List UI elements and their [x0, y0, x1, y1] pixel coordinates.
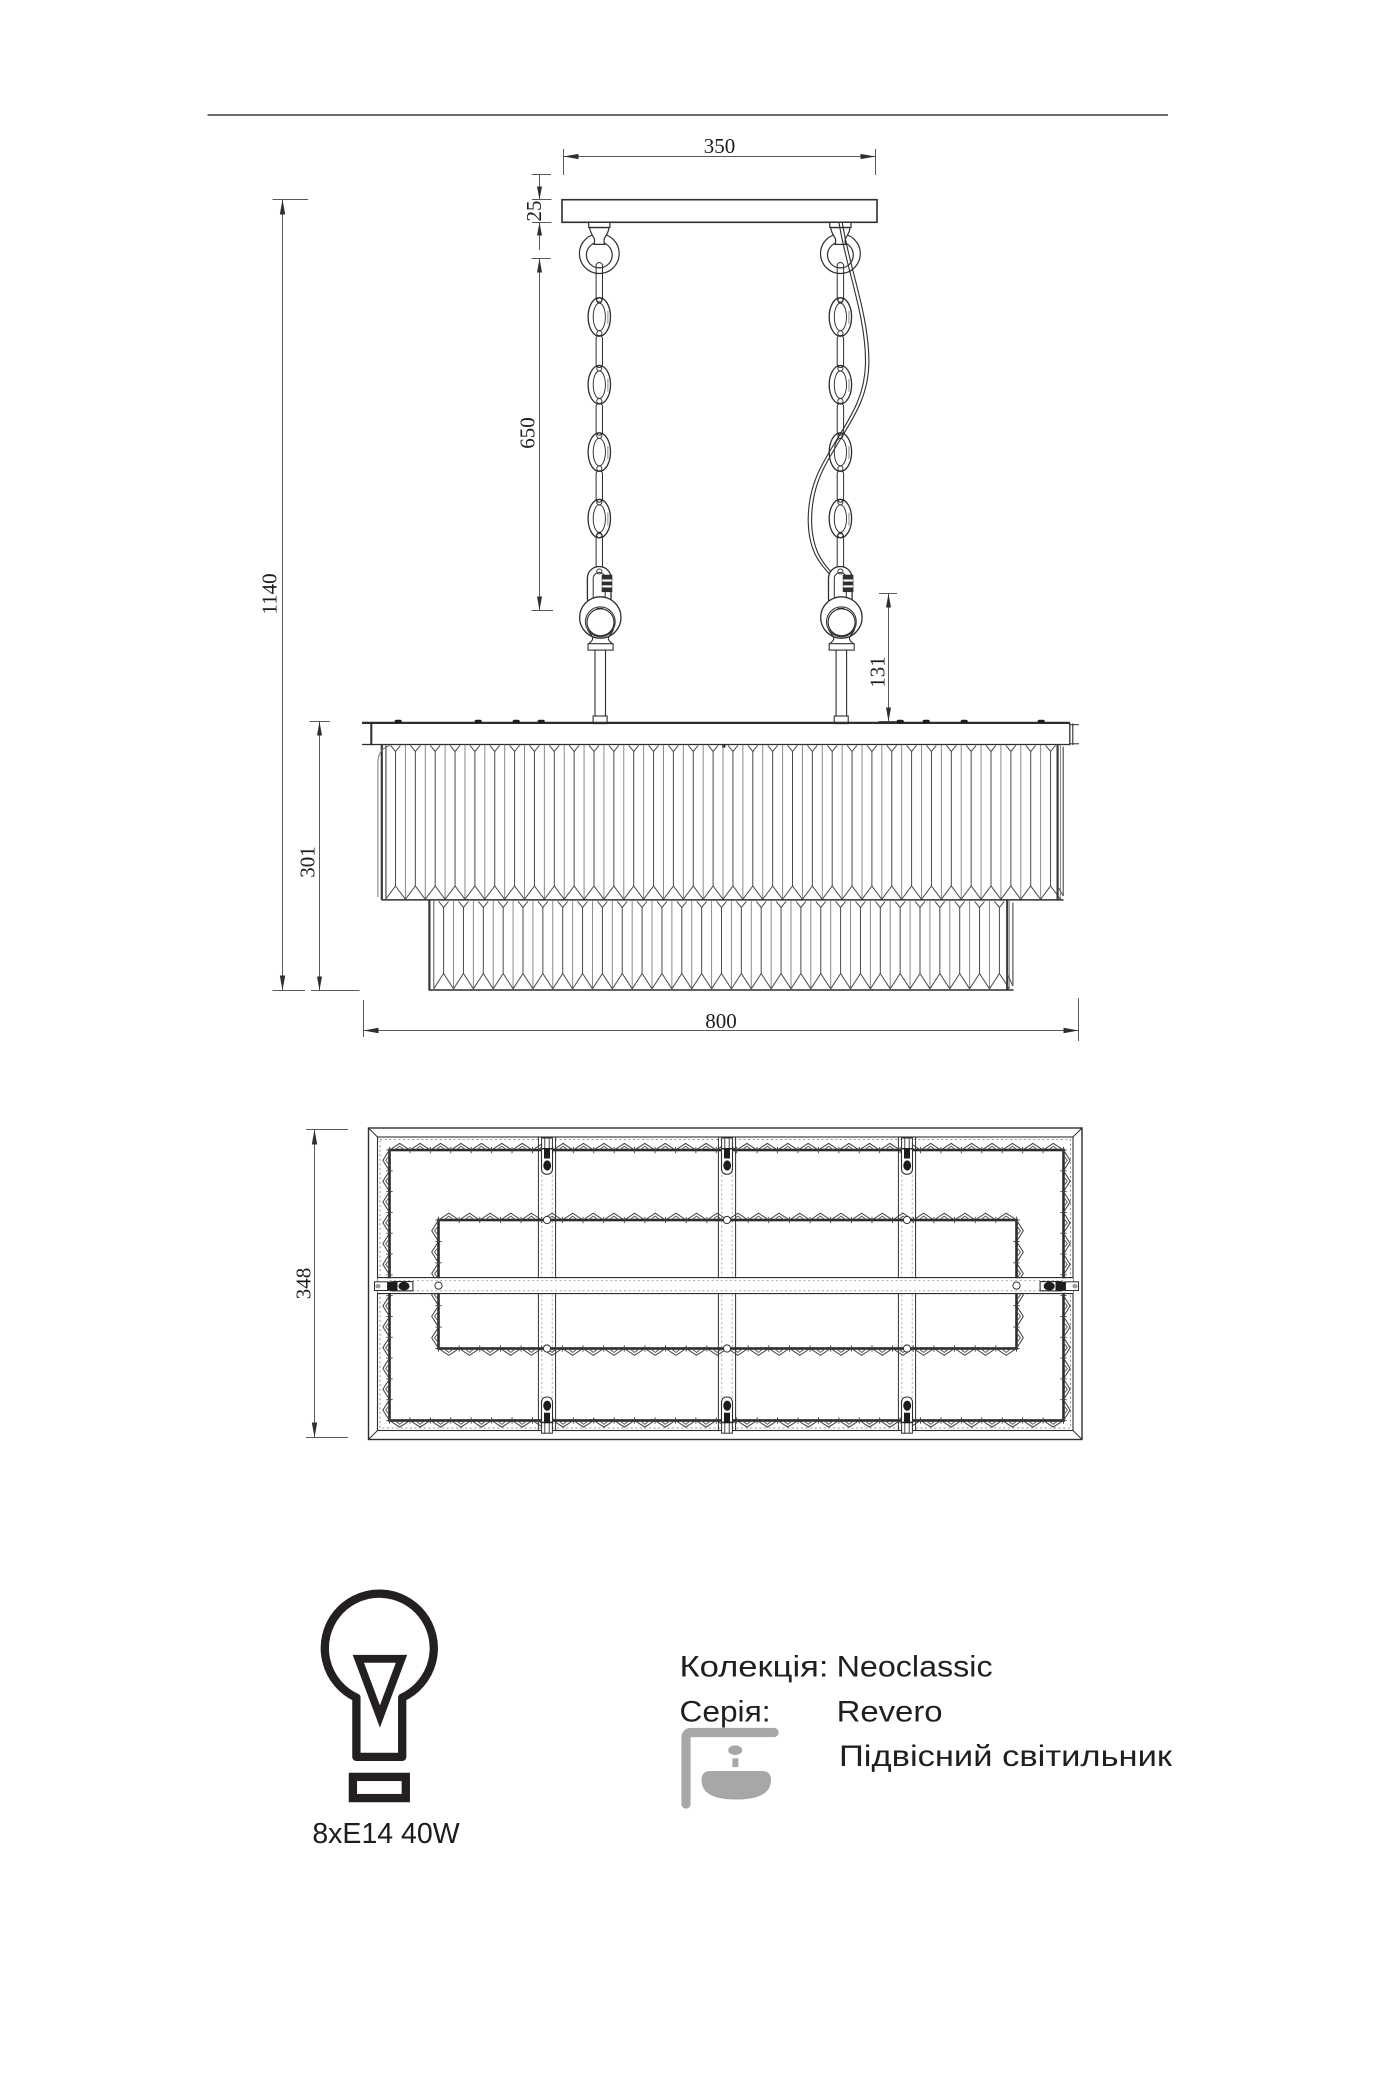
svg-text:350: 350	[704, 134, 736, 158]
svg-text:Revero: Revero	[837, 1695, 943, 1728]
svg-text:650: 650	[515, 417, 539, 449]
svg-text:Підвісний світильник: Підвісний світильник	[839, 1740, 1173, 1773]
svg-text:Серія:: Серія:	[680, 1695, 771, 1728]
svg-text:Neoclassic: Neoclassic	[837, 1651, 993, 1684]
svg-text:Колекція:: Колекція:	[680, 1651, 829, 1684]
svg-text:800: 800	[705, 1009, 737, 1033]
svg-text:348: 348	[292, 1268, 316, 1300]
svg-text:25: 25	[522, 201, 546, 222]
svg-text:1140: 1140	[257, 573, 281, 614]
svg-text:8xE14 40W: 8xE14 40W	[312, 1818, 459, 1850]
svg-text:131: 131	[866, 656, 890, 688]
svg-text:301: 301	[295, 846, 319, 878]
